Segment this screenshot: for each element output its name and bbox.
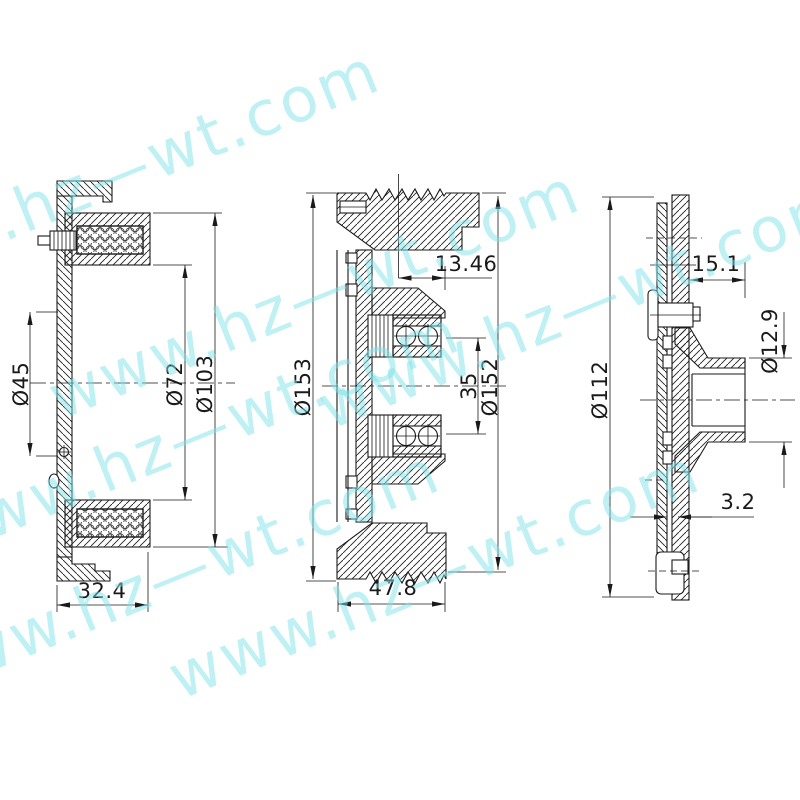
coil-winding-top bbox=[77, 226, 143, 254]
damper-block-lower bbox=[648, 552, 702, 594]
dim-label-shaft-diameter: Ø12.9 bbox=[758, 308, 782, 374]
dim-label-plate-thickness: 3.2 bbox=[721, 490, 756, 514]
clutch-assembly-drawing: Ø45 Ø72 Ø103 32.4 bbox=[0, 0, 800, 800]
dim-label-coil-inner-diameter: Ø45 bbox=[9, 362, 33, 407]
technical-drawing-page: Ø45 Ø72 Ø103 32.4 bbox=[0, 0, 800, 800]
dim-label-hub-outer-diameter: Ø112 bbox=[588, 361, 612, 420]
